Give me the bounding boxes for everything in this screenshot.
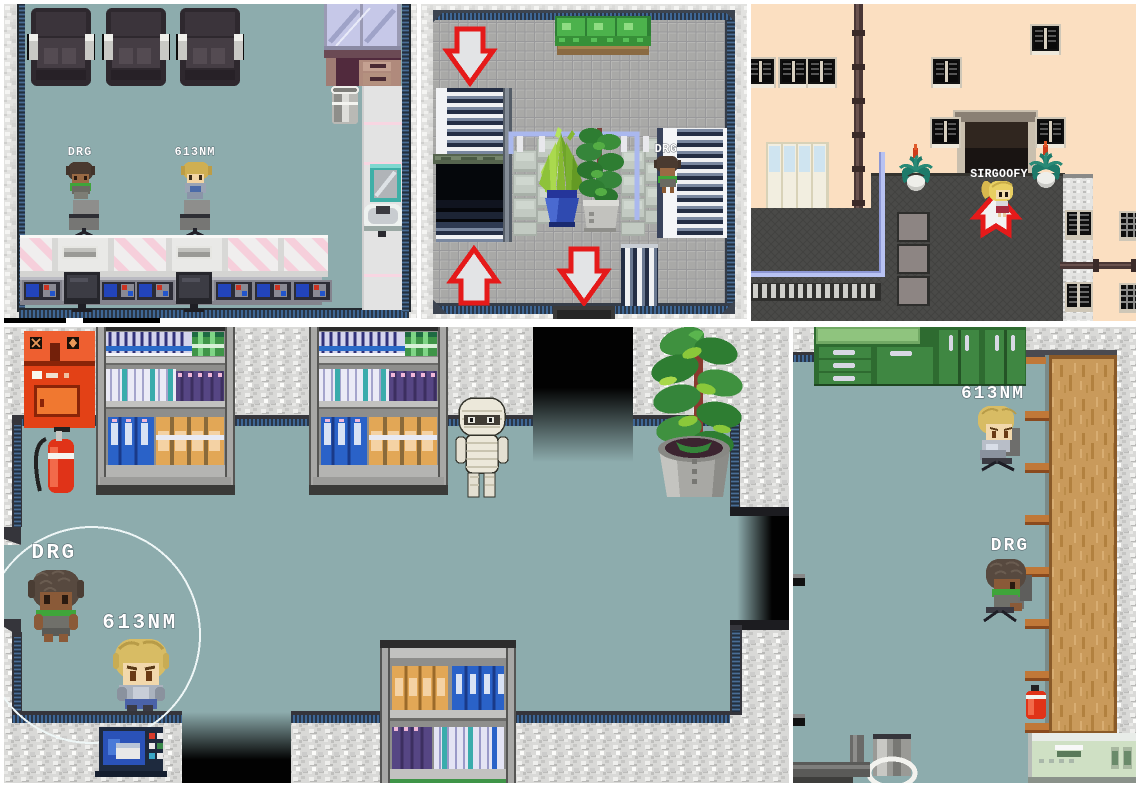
svg-text:DRG: DRG: [654, 142, 677, 156]
svg-text:DRG: DRG: [31, 542, 76, 565]
svg-text:613NM: 613NM: [961, 384, 1025, 404]
svg-text:DRG: DRG: [68, 145, 93, 159]
svg-text:613NM: 613NM: [102, 612, 178, 635]
svg-text:613NM: 613NM: [174, 145, 215, 159]
svg-text:DRG: DRG: [991, 536, 1029, 556]
svg-text:SIRGOOFY: SIRGOOFY: [970, 168, 1028, 181]
